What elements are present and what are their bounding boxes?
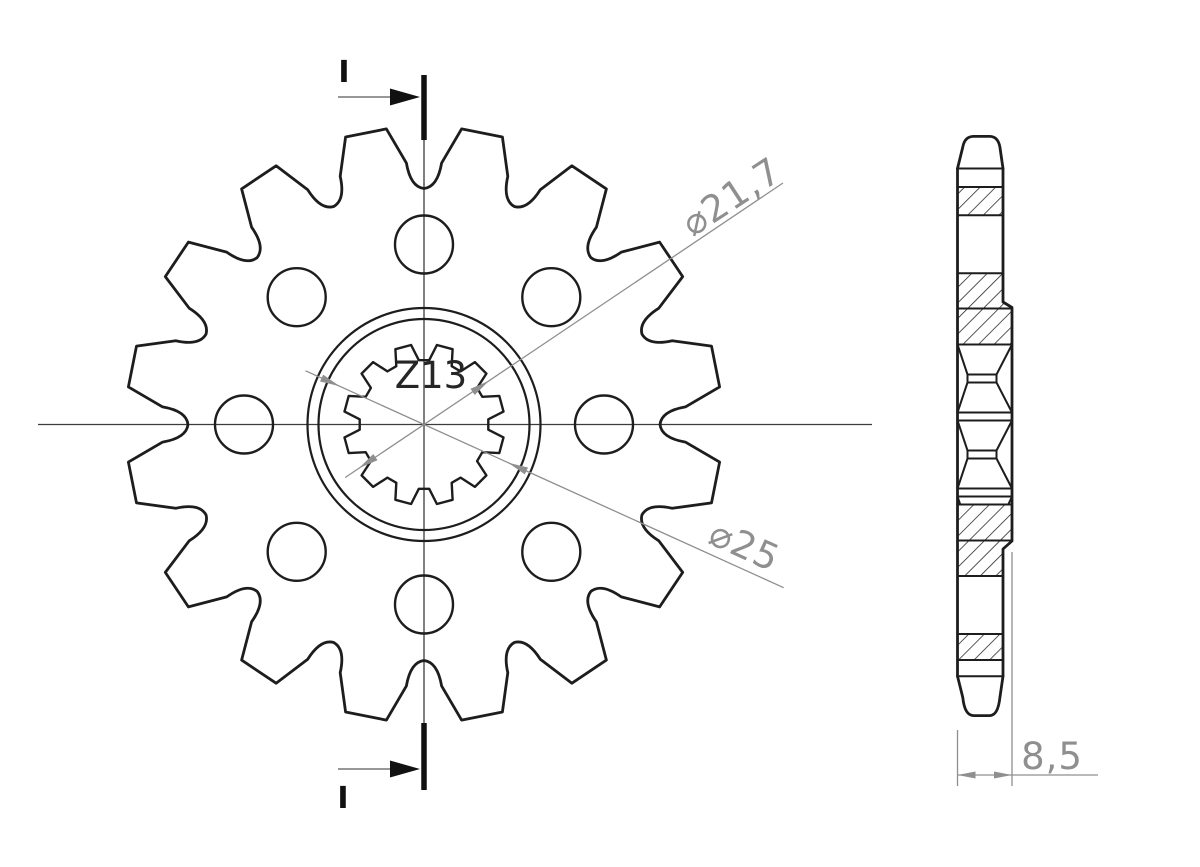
dim-arrow-width-right-icon [994, 772, 1012, 779]
sprocket-technical-drawing: I I Z13 ⌀21,7 ⌀25 [0, 0, 1200, 867]
mounting-hole [268, 268, 326, 326]
spline-taper-line [997, 345, 1013, 375]
spline-taper-line [958, 345, 968, 375]
spline-taper-line [958, 383, 968, 413]
spline-taper-line [997, 383, 1013, 413]
spline-taper-line [997, 421, 1013, 451]
spline-taper-line [997, 459, 1013, 489]
mounting-hole [522, 523, 580, 581]
section-arrow-bottom-icon [390, 761, 420, 778]
side-spline-profile [958, 345, 1013, 505]
section-label-bottom: I [337, 781, 348, 816]
dim-label-width: 8,5 [1021, 735, 1083, 778]
hatch-rim-bottom [958, 634, 1004, 660]
hatch-rim-top [958, 187, 1004, 215]
side-tooth-bottom [958, 676, 1004, 715]
dim-label-bore: ⌀21,7 [674, 149, 789, 245]
section-label-top: I [338, 55, 349, 90]
mounting-hole [268, 523, 326, 581]
spline-taper-line [958, 421, 968, 451]
side-tooth-top [958, 136, 1004, 168]
spline-taper-line [958, 459, 968, 489]
side-section-view: 8,5 [958, 136, 1099, 786]
dim-line-hub [306, 371, 784, 588]
mounting-hole [522, 268, 580, 326]
dim-arrow-width-left-icon [958, 772, 976, 779]
spline-count-label: Z13 [395, 354, 467, 397]
section-arrow-top-icon [390, 89, 420, 106]
